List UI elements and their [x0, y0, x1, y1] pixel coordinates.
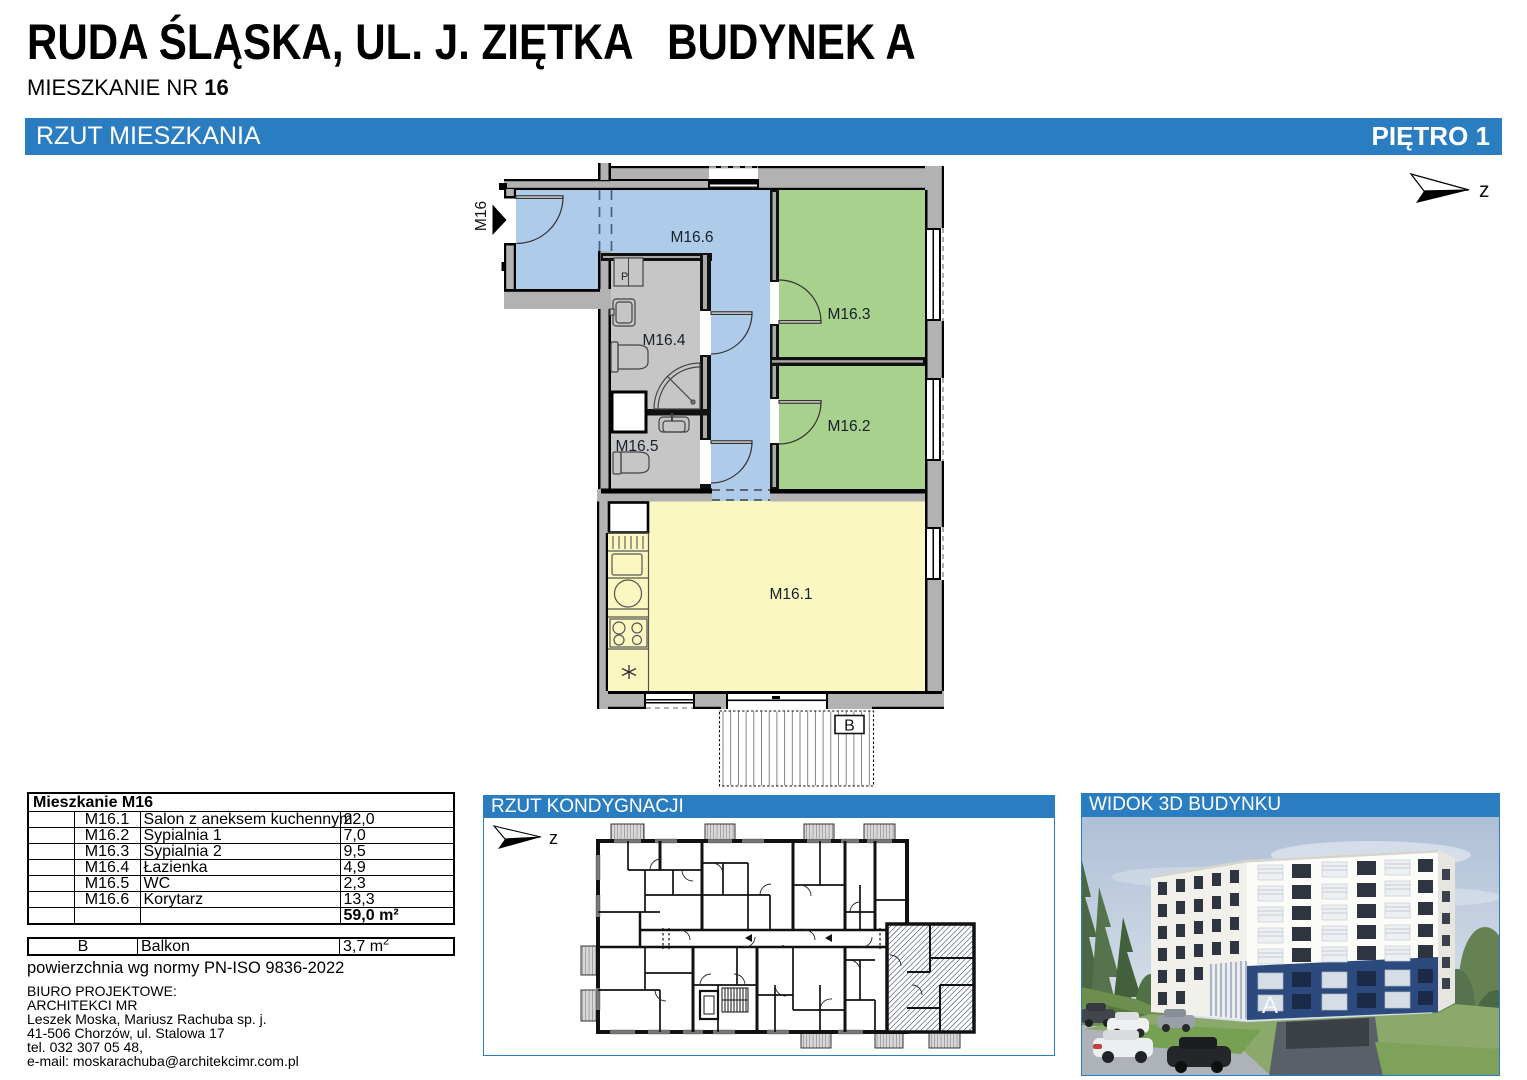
svg-text:M16.2: M16.2 [827, 418, 870, 435]
svg-text:M16.3: M16.3 [827, 306, 870, 323]
svg-text:z: z [1479, 179, 1490, 202]
svg-text:B: B [844, 718, 855, 735]
svg-text:M16.5: M16.5 [615, 438, 658, 455]
svg-text:z: z [549, 828, 558, 848]
svg-text:M16.1: M16.1 [769, 586, 812, 603]
svg-text:M16: M16 [473, 201, 490, 231]
svg-text:M16.6: M16.6 [670, 229, 713, 246]
svg-text:M16.4: M16.4 [642, 332, 685, 349]
svg-text:P: P [621, 271, 628, 283]
